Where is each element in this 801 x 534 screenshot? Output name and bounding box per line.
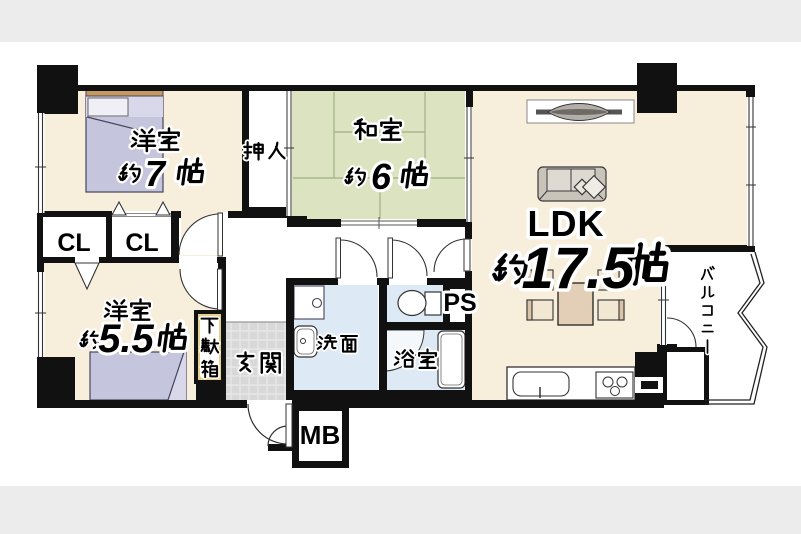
svg-text:5.5: 5.5 [98, 317, 154, 361]
svg-text:CL: CL [57, 229, 90, 257]
svg-text:PS: PS [443, 289, 476, 317]
svg-text:CL: CL [125, 229, 158, 257]
svg-text:7: 7 [145, 153, 167, 194]
svg-text:6: 6 [371, 156, 392, 197]
svg-text:MB: MB [300, 420, 340, 450]
svg-text:17.5: 17.5 [522, 236, 636, 301]
